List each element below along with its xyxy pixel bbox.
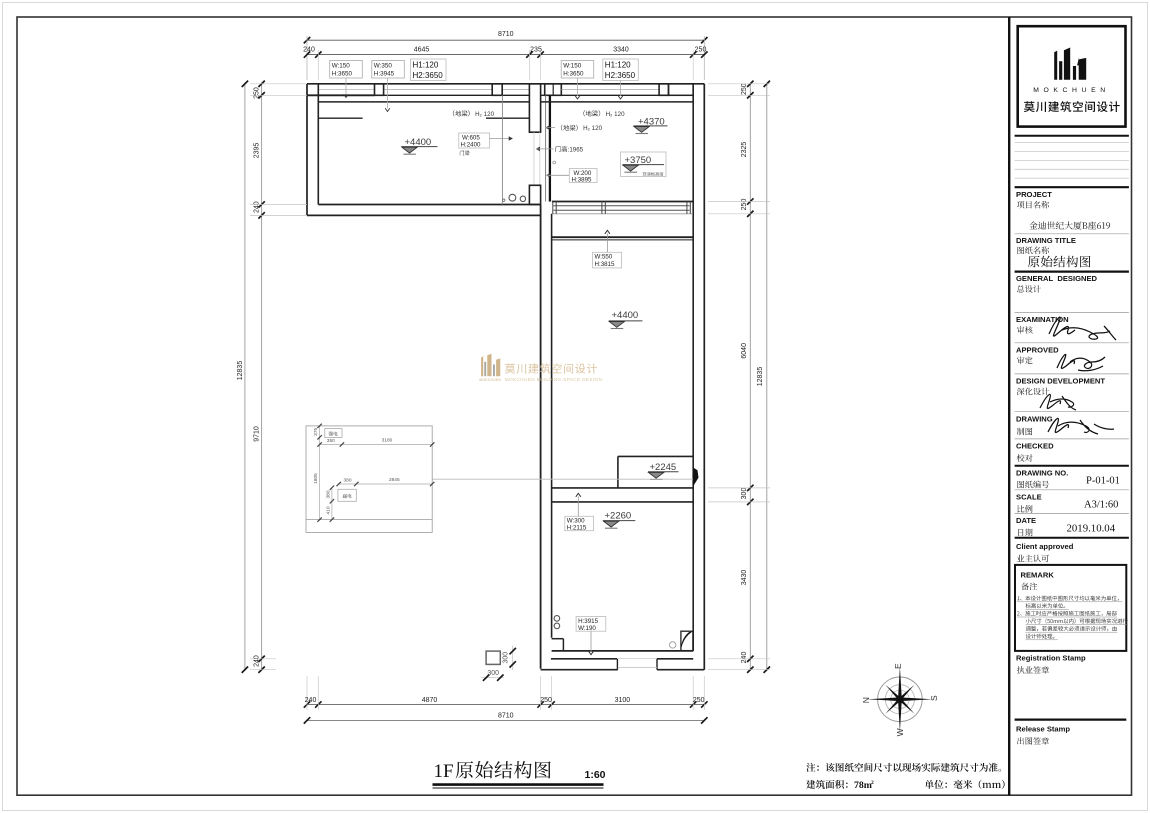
svg-text:78m: 78m [854,780,872,791]
svg-text:1F: 1F [434,761,454,782]
svg-text:H:3945: H:3945 [374,71,395,78]
svg-text:3180: 3180 [382,438,393,444]
svg-text:2395: 2395 [253,143,260,159]
svg-text:APPROVED: APPROVED [1016,346,1059,355]
svg-text:H:3815: H:3815 [595,261,616,268]
svg-text:DESIGN DEVELOPMENT: DESIGN DEVELOPMENT [1016,377,1105,386]
svg-text:250: 250 [695,46,707,53]
svg-text:235: 235 [530,46,542,53]
svg-text:240: 240 [253,201,260,213]
svg-text:2: 2 [871,780,874,786]
svg-text:W: W [895,728,905,736]
svg-text:300: 300 [487,670,499,677]
svg-text:8710: 8710 [498,31,514,38]
svg-text:250: 250 [741,83,748,95]
svg-text:CHECKED: CHECKED [1016,442,1054,451]
svg-text:H2:3650: H2:3650 [605,71,636,80]
svg-text:1805: 1805 [313,473,319,484]
svg-text:MOKCHUEN: MOKCHUEN [1033,87,1109,94]
svg-text:W:300: W:300 [567,518,585,525]
svg-text:H:2400: H:2400 [461,141,482,148]
svg-text:DATE: DATE [1016,516,1036,525]
svg-text:E: E [893,663,903,669]
svg-text:DRAWING: DRAWING [1016,415,1053,424]
svg-text:350: 350 [327,438,335,444]
svg-text:300: 300 [503,652,510,664]
svg-text:240: 240 [305,697,317,704]
svg-text:12835: 12835 [237,361,244,381]
svg-text:250: 250 [253,87,260,99]
svg-text:H₂ 120: H₂ 120 [606,111,625,118]
svg-text:240: 240 [741,652,748,664]
svg-text:H₂ 120: H₂ 120 [475,111,494,118]
svg-text:S: S [929,695,939,701]
svg-text:250: 250 [693,697,705,704]
svg-text:H:3895: H:3895 [572,177,593,184]
svg-text:MOKCHUEN BUILDING SPACE DESIGN: MOKCHUEN BUILDING SPACE DESIGN [505,377,602,382]
svg-text:+4400: +4400 [612,310,639,321]
svg-text:2019.10.04: 2019.10.04 [1067,523,1116,535]
svg-text:12835: 12835 [757,367,764,387]
svg-text:240: 240 [303,46,315,53]
svg-text:240: 240 [253,655,260,667]
svg-text:H:3650: H:3650 [563,71,584,78]
svg-text:DRAWING TITLE: DRAWING TITLE [1016,236,1076,245]
svg-text:EXAMINATION: EXAMINATION [1016,315,1069,324]
svg-text:Registration Stamp: Registration Stamp [1016,654,1086,663]
svg-text:410: 410 [325,506,331,514]
svg-text:2845: 2845 [389,477,400,483]
svg-text:375: 375 [313,427,319,435]
svg-text:250: 250 [741,199,748,211]
svg-text:W:350: W:350 [374,62,393,69]
svg-text::1965: :1965 [568,146,584,153]
svg-text:H1:120: H1:120 [605,61,631,70]
svg-text:H:2115: H:2115 [567,525,587,532]
svg-text:W:150: W:150 [332,62,351,69]
svg-text:Release Stamp: Release Stamp [1016,725,1070,734]
svg-text:W:605: W:605 [462,134,480,141]
svg-text:H1:120: H1:120 [413,61,439,70]
svg-text:380: 380 [343,478,351,484]
svg-text:380: 380 [325,490,331,498]
svg-text:PROJECT: PROJECT [1016,190,1052,199]
svg-text:+2260: +2260 [605,510,632,521]
svg-text:3340: 3340 [613,46,629,53]
svg-text:N: N [861,697,871,703]
svg-text:DRAWING NO.: DRAWING NO. [1016,469,1068,478]
svg-text:250: 250 [540,697,552,704]
svg-text:W:190: W:190 [578,625,596,632]
svg-text:SCALE: SCALE [1016,493,1042,502]
svg-text:Client approved: Client approved [1016,542,1074,551]
svg-text:GENERAL DESIGNED: GENERAL DESIGNED [1016,274,1098,283]
svg-text:300: 300 [741,488,748,500]
svg-text:REMARK: REMARK [1021,571,1055,580]
svg-text:6040: 6040 [741,343,748,359]
svg-text:A3/1:60: A3/1:60 [1084,500,1118,511]
svg-text:1:60: 1:60 [585,769,606,781]
svg-text:3100: 3100 [615,697,631,704]
svg-text:P-01-01: P-01-01 [1086,476,1120,487]
svg-text:4870: 4870 [422,697,438,704]
svg-text:H:3915: H:3915 [578,618,599,625]
svg-text:H2:3650: H2:3650 [413,71,444,80]
svg-text:2325: 2325 [741,142,748,158]
svg-text:W:550: W:550 [595,254,613,261]
svg-text:MOKCHUEN: MOKCHUEN [479,378,501,382]
svg-text:4645: 4645 [414,46,430,53]
svg-text:H:3650: H:3650 [332,71,353,78]
svg-text:9710: 9710 [253,426,260,442]
svg-text:H₂ 120: H₂ 120 [583,125,602,132]
svg-text:W:150: W:150 [563,62,582,69]
svg-text:8710: 8710 [498,713,514,720]
svg-text:3430: 3430 [741,570,748,586]
